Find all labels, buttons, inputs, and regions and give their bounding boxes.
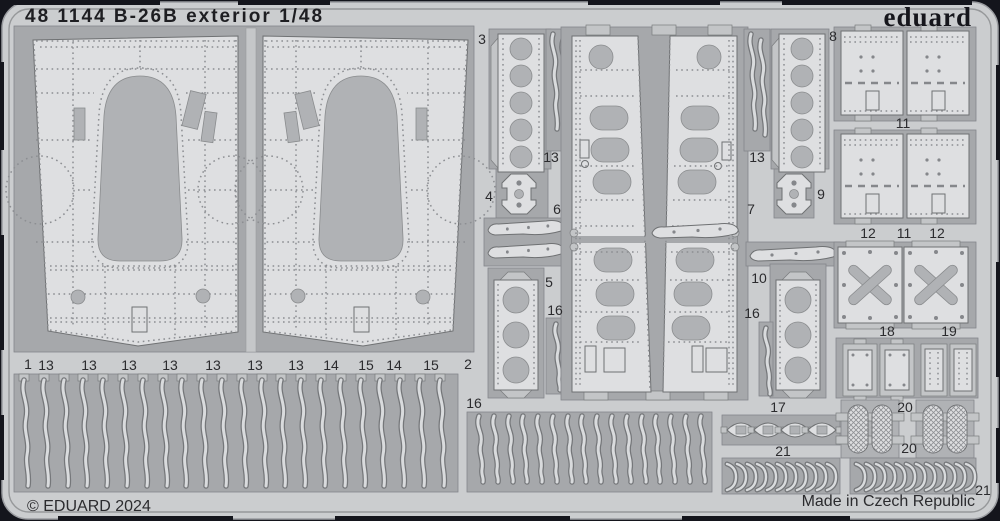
door-part-19 <box>950 344 976 396</box>
cowl-strip-part-5 <box>494 272 538 398</box>
made-in-text: Made in Czech Republic <box>802 493 975 510</box>
grille-part-20 <box>836 400 904 458</box>
sheet-title: 48 1144 B-26B exterior 1/48 <box>25 6 324 27</box>
part-number-label: 13 <box>247 357 263 373</box>
panel-part-11 <box>841 128 903 224</box>
part-number-label: 14 <box>386 357 402 373</box>
x-brace-part-12 <box>904 241 968 329</box>
part-number-label: 13 <box>543 149 559 165</box>
part-number-label: 13 <box>81 357 97 373</box>
part-number-label: 7 <box>747 201 755 217</box>
part-number-label: 13 <box>288 357 304 373</box>
hook-parts-21b <box>850 458 976 494</box>
door-panel-left <box>570 36 652 392</box>
copyright-text: © EDUARD 2024 <box>27 498 151 515</box>
part-number-label: 11 <box>897 225 912 241</box>
part-number-label: 13 <box>121 357 137 373</box>
brand-logo: eduard <box>883 2 972 32</box>
panel-part-11 <box>841 25 903 121</box>
part-number-label: 12 <box>929 225 945 241</box>
door-part-18 <box>880 339 914 401</box>
part-number-label: 5 <box>545 274 553 290</box>
grille-part-20 <box>911 400 979 458</box>
part-number-label: 10 <box>751 270 767 286</box>
part-number-label: 16 <box>547 302 563 318</box>
part-number-label: 21 <box>775 443 791 459</box>
part-number-label: 11 <box>896 115 911 131</box>
part-number-label: 14 <box>323 357 339 373</box>
part-number-label: 1 <box>24 356 32 372</box>
part-number-label: 2 <box>464 356 472 372</box>
part-number-label: 15 <box>423 357 439 373</box>
panel-part-11 <box>907 25 969 121</box>
part-number-label: 13 <box>749 149 765 165</box>
hinge-part-9 <box>777 174 811 214</box>
part-number-label: 17 <box>770 399 786 415</box>
part-number-label: 8 <box>829 28 837 44</box>
cowl-strip-part-10 <box>776 272 820 398</box>
cowl-strip-part-8 <box>772 34 825 172</box>
part-number-label: 20 <box>901 440 917 456</box>
part-number-label: 4 <box>485 188 493 204</box>
wing-panels-region <box>6 26 495 352</box>
cowl-strip-part-3 <box>491 34 544 172</box>
part-number-label: 18 <box>879 323 895 339</box>
part-number-label: 15 <box>358 357 374 373</box>
center-door-panels <box>561 25 748 400</box>
part-number-label: 13 <box>205 357 221 373</box>
part-number-label: 13 <box>38 357 54 373</box>
part-number-label: 3 <box>478 31 486 47</box>
hinge-part-4 <box>502 174 536 214</box>
part-number-label: 19 <box>941 323 957 339</box>
part-number-label: 6 <box>553 201 561 217</box>
part-number-label: 21 <box>975 482 991 498</box>
x-brace-part-12 <box>838 241 902 329</box>
panel-part-11 <box>907 128 969 224</box>
part-number-label: 16 <box>466 395 482 411</box>
part-number-label: 12 <box>860 225 876 241</box>
part-number-label: 16 <box>744 305 760 321</box>
part-number-label: 13 <box>162 357 178 373</box>
door-panel-right <box>660 36 739 392</box>
door-part-18 <box>843 339 877 401</box>
strip-parts-box <box>14 374 458 492</box>
part-number-label: 20 <box>897 399 913 415</box>
part-number-label: 9 <box>817 186 825 202</box>
photoetch-fret-image: 48 1144 B-26B exterior 1/48 eduard © EDU… <box>0 0 1000 521</box>
wire-parts-box-16 <box>467 412 712 492</box>
door-part-19 <box>921 344 947 396</box>
pe-sheet-drawing: 48 1144 B-26B exterior 1/48 eduard © EDU… <box>0 0 1000 521</box>
